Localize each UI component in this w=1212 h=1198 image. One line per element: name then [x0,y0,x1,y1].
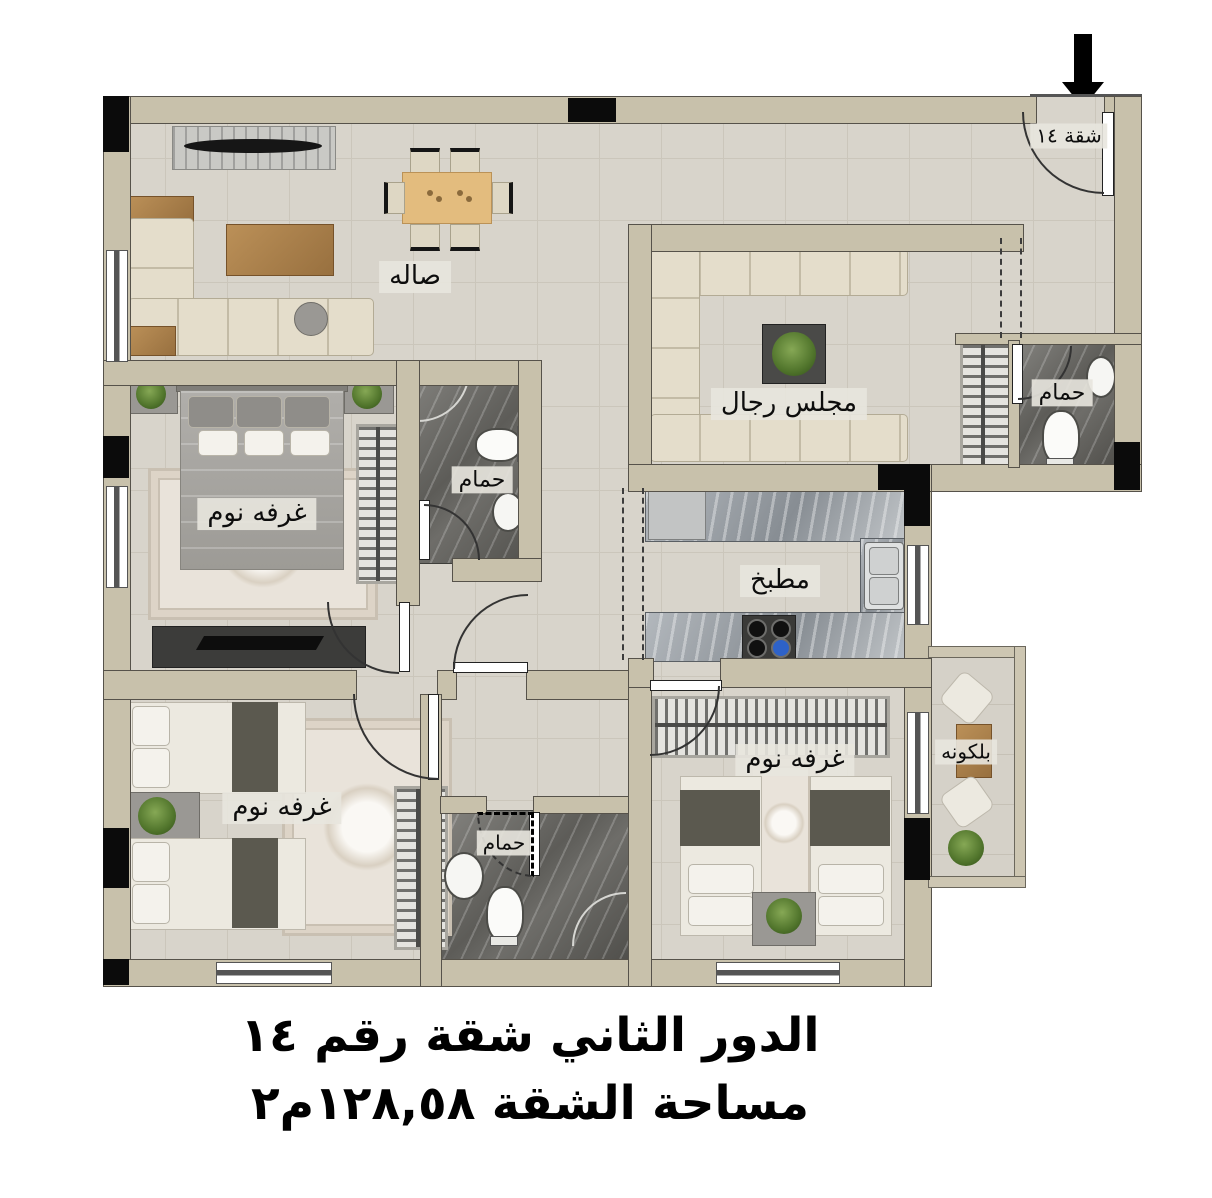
opening-dashed-line [1020,238,1022,338]
round-side-table [294,302,328,336]
sink-basin [869,577,899,605]
bed-pillow [132,884,170,924]
column [103,436,129,478]
wall-segment [103,670,357,700]
bed-pillow [284,396,330,428]
bed-pillow [236,396,282,428]
floor-plan-canvas: صاله مجلس رجال شقة ١٤ حمام غرفه نوم حمام… [0,0,1212,1198]
opening-dashed-line [1000,238,1002,338]
wall-segment [533,796,630,814]
dining-chair [384,182,405,214]
bed-throw [232,838,278,928]
dining-table [402,172,492,224]
bed-pillow [132,706,170,746]
room-label-kitchen: مطبخ [740,565,820,597]
burner-icon [747,638,767,658]
bed-pillow [688,864,754,894]
toilet [486,886,524,942]
column [103,828,129,888]
bed-pillow [290,430,330,456]
sofa-corner-table [128,326,176,356]
column [568,98,616,122]
bed-throw [810,790,890,846]
room-label-bedroom-three: غرفه نوم [735,744,854,776]
plan-title-line1: الدور الثاني شقة رقم ١٤ [130,1002,930,1070]
tv-screen [184,139,322,153]
wall-segment [1114,96,1142,492]
bed-pillow [188,396,234,428]
wall-segment [955,333,1142,345]
table-decor [466,196,472,202]
entrance-arrow-icon [1074,34,1092,84]
column [1114,442,1140,490]
bed-pillow [818,896,884,926]
room-label-majlis: مجلس رجال [711,388,867,420]
column [103,959,129,985]
kitchen-sink [864,542,904,610]
plan-title: الدور الثاني شقة رقم ١٤ مساحة الشقة ١٢٨,… [130,1002,930,1138]
dining-chair [450,224,480,251]
bed-pillow [132,842,170,882]
majlis-plant [772,332,816,376]
bed-pillow [818,864,884,894]
burner-icon [771,619,791,639]
room-label-bath-entrance: حمام [1032,379,1093,406]
balcony-plant [948,830,984,866]
dining-chair [450,148,480,175]
wall-segment [526,670,630,700]
room-label-hall: صاله [379,261,451,293]
bathroom-sink [444,852,484,900]
door-leaf [399,602,410,672]
rug-medallion [760,799,808,847]
wall-segment [396,360,420,606]
column [904,818,930,880]
room-label-bath-master: حمام [452,466,513,493]
wall-segment [452,558,542,582]
window [106,486,128,588]
dining-chair [410,224,440,251]
room-label-bath-shared: حمام [477,831,531,856]
stove [742,615,796,659]
wall-segment [628,684,652,987]
bed-pillow [688,896,754,926]
shoe-cabinet [960,342,1012,472]
window [907,712,929,814]
bed-pillow [132,748,170,788]
table-decor [457,190,463,196]
window [716,962,840,984]
table-decor [436,196,442,202]
nightstand-plant [138,797,176,835]
dining-chair [492,182,513,214]
cabinet-rail [981,345,985,469]
opening-dashed-line [642,488,644,660]
balcony-wall [928,876,1026,888]
balcony-wall [1014,646,1026,888]
bed-throw [680,790,760,846]
bedroom-tv-screen [196,636,324,650]
column [103,96,129,152]
room-label-bedroom-master: غرفه نوم [197,498,316,530]
window [106,250,128,362]
table-decor [427,190,433,196]
room-label-bedroom-two: غرفه نوم [222,792,341,824]
room-label-balcony: بلكونه [935,740,997,765]
toilet-tank [490,936,518,946]
toilet [475,428,521,462]
balcony-wall [928,646,1026,658]
bed-throw [232,702,278,792]
opening-dashed-line [622,488,624,660]
nightstand-plant [766,898,802,934]
fridge [648,491,706,540]
wall-segment [103,360,542,386]
dining-chair [410,148,440,175]
coffee-table [226,224,334,276]
sink-basin [869,547,899,575]
room-label-entrance: شقة ١٤ [1030,124,1107,149]
wall-segment [518,360,542,582]
window [907,545,929,625]
bed-pillow [244,430,284,456]
wall-segment [628,224,1024,252]
column [904,474,930,526]
majlis-seating-bottom [650,414,908,462]
bed-pillow [198,430,238,456]
wall-segment [720,658,932,688]
plan-title-line2: مساحة الشقة ١٢٨,٥٨م٢ [130,1070,930,1138]
wall-segment [930,464,1142,492]
wardrobe-rail [376,427,380,581]
window [216,962,332,984]
wall-segment [628,224,652,482]
toilet [1042,410,1080,464]
burner-lit-icon [771,638,791,658]
burner-icon [747,619,767,639]
